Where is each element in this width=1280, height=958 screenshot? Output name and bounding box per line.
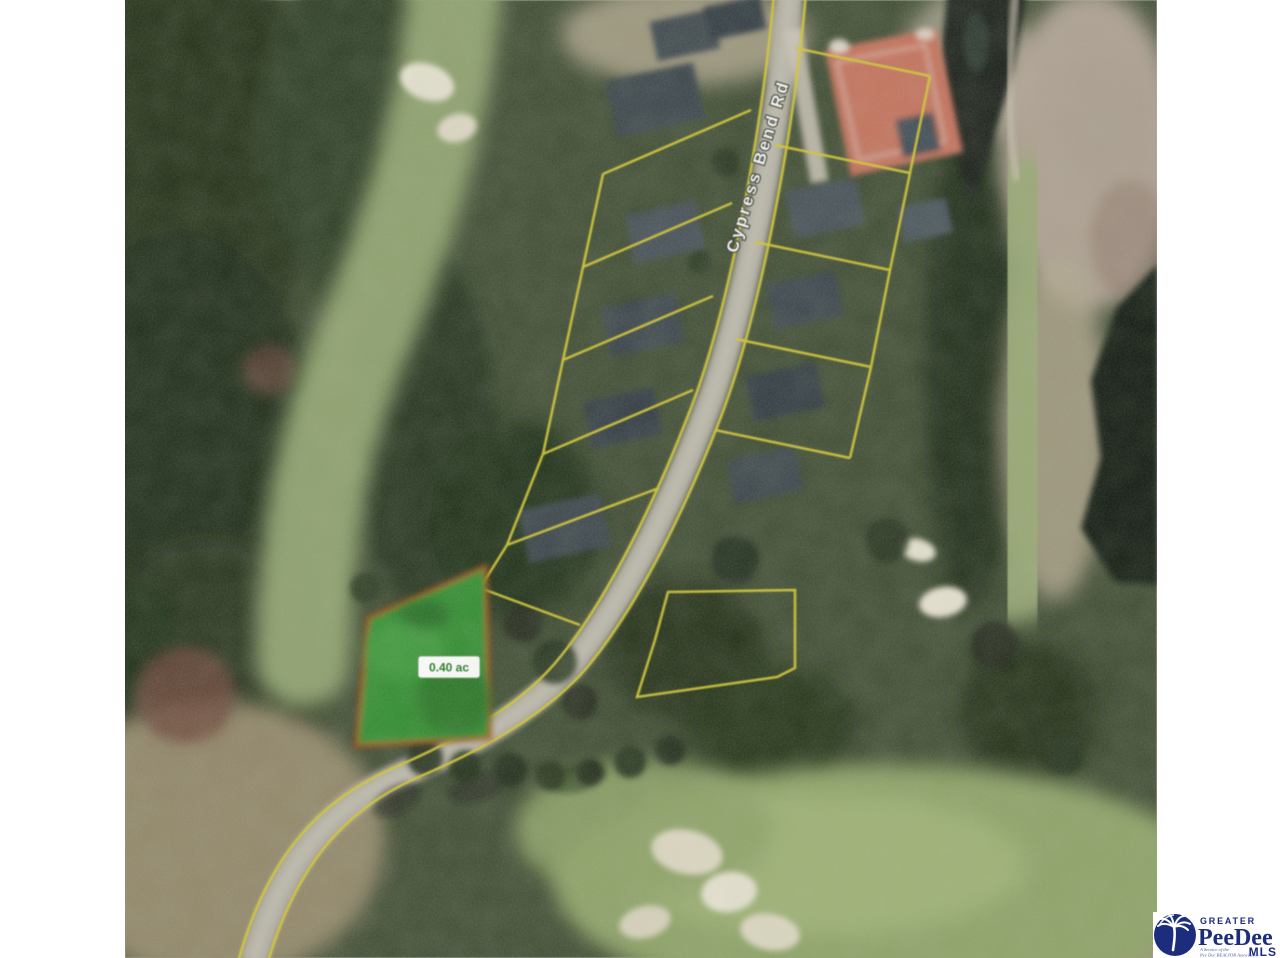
aerial-scene: Cypress Bend Rd 0.40 ac xyxy=(125,0,1157,958)
mls-logo: GREATER PeeDee MLS A Service of the Pee … xyxy=(1153,912,1280,958)
photo-grain-overlay xyxy=(125,0,1157,958)
logo-tagline-line1: A Service of the xyxy=(1199,947,1229,952)
listing-photo-canvas: Cypress Bend Rd 0.40 ac xyxy=(0,0,1280,958)
mls-logo-art: GREATER PeeDee MLS A Service of the Pee … xyxy=(1153,912,1280,958)
aerial-map-photo: Cypress Bend Rd 0.40 ac xyxy=(125,0,1157,958)
logo-tagline-line2: Pee Dee REALTOR Association xyxy=(1199,953,1259,958)
palmetto-tree-icon xyxy=(1154,914,1196,957)
